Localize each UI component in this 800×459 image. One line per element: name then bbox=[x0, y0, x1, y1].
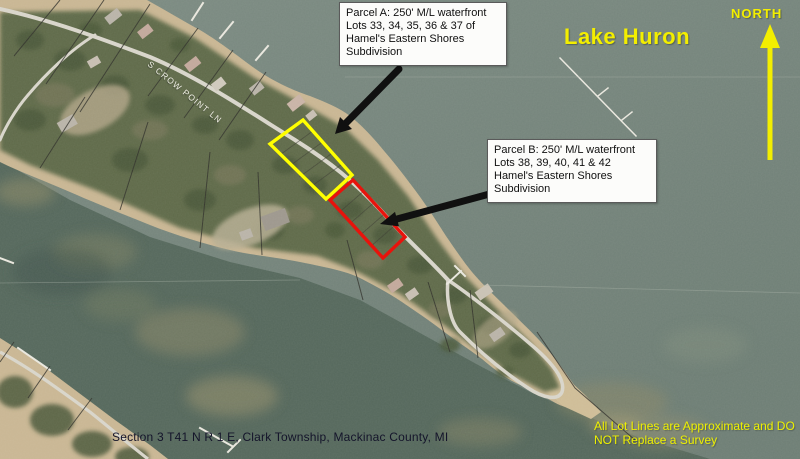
aerial-parcel-map: Parcel A: 250' M/L waterfront Lots 33, 3… bbox=[0, 0, 800, 459]
north-label: NORTH bbox=[731, 6, 782, 21]
parcel-a-line1: Parcel A: 250' M/L waterfront bbox=[346, 7, 500, 20]
aerial-photo-layer bbox=[0, 0, 800, 459]
survey-disclaimer-line1: All Lot Lines are Approximate and DO bbox=[594, 419, 795, 433]
survey-disclaimer: All Lot Lines are Approximate and DO NOT… bbox=[594, 419, 795, 447]
parcel-b-line3: Hamel's Eastern Shores bbox=[494, 170, 650, 183]
legal-description-caption: Section 3 T41 N R 1 E, Clark Township, M… bbox=[112, 430, 448, 444]
survey-disclaimer-line2: NOT Replace a Survey bbox=[594, 433, 795, 447]
parcel-a-line3: Hamel's Eastern Shores bbox=[346, 33, 500, 46]
parcel-b-line4: Subdivision bbox=[494, 183, 650, 196]
parcel-b-line1: Parcel B: 250' M/L waterfront bbox=[494, 144, 650, 157]
lake-huron-label: Lake Huron bbox=[564, 24, 690, 50]
parcel-b-note-box: Parcel B: 250' M/L waterfront Lots 38, 3… bbox=[487, 139, 657, 203]
parcel-a-note-box: Parcel A: 250' M/L waterfront Lots 33, 3… bbox=[339, 2, 507, 66]
parcel-a-line4: Subdivision bbox=[346, 46, 500, 59]
parcel-a-line2: Lots 33, 34, 35, 36 & 37 of bbox=[346, 20, 500, 33]
parcel-b-line2: Lots 38, 39, 40, 41 & 42 bbox=[494, 157, 650, 170]
